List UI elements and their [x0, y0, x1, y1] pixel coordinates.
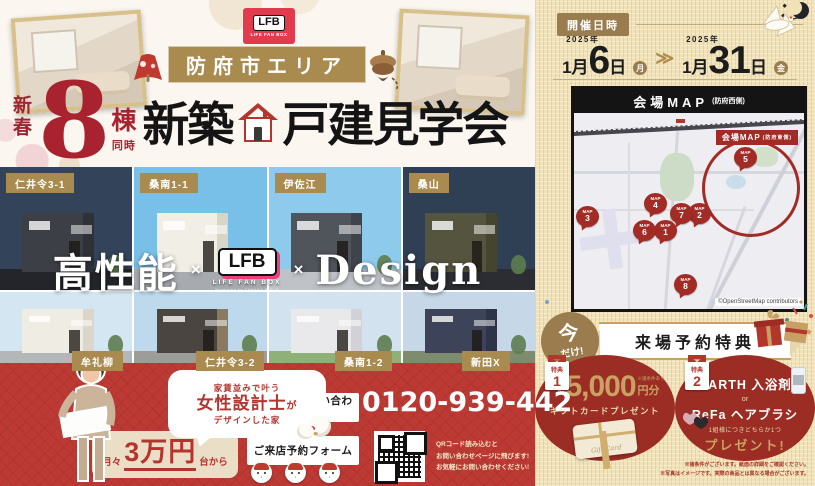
- house-label: 桑山: [409, 173, 449, 193]
- benefit2-note: 1組様につきどちらか1つ: [709, 425, 782, 434]
- start-date-main: 1月 6 日: [562, 45, 626, 78]
- fine-print-line1: ※諸条件がございます。紙面の詳細をご確認ください。: [609, 461, 809, 470]
- bubble-main-suffix: が: [287, 401, 298, 412]
- map-title: 会場MAP: [633, 92, 708, 111]
- map-header: 会場MAP (防府西側): [574, 89, 804, 113]
- qr-note-line2: お問い合わせページに飛びます!: [436, 451, 532, 463]
- station-marker: [676, 119, 685, 123]
- benefit2-or: or: [742, 394, 749, 403]
- lfb-logo-sub: LIFE FAN BOX: [250, 32, 287, 37]
- qr-note: QRコード読み込むと お問い合わせページに飛びます! お気軽にお問い合わせくださ…: [436, 439, 532, 474]
- daruma-icon: [251, 462, 272, 483]
- daruma-icon: [319, 462, 340, 483]
- benefit-badge-number: 2: [693, 374, 701, 388]
- fine-print: ※諸条件がございます。紙面の詳細をご確認ください。 ※写真はイメージです。実際の…: [609, 461, 809, 479]
- map-title-note: (防府西側): [712, 96, 745, 106]
- house-label: 伊佐江: [275, 173, 326, 193]
- end-day-unit: 日: [750, 53, 767, 78]
- end-date: 2025年 1月 31 日: [682, 34, 767, 78]
- bubble-main-text: 女性設計士: [197, 394, 287, 414]
- lfb-logo-caption: Produced by TANAKA BUILD: [215, 287, 279, 292]
- title-kodate: 戸建見学会: [282, 86, 507, 155]
- benefit2-badge: 特典 2: [685, 361, 709, 390]
- end-weekday-badge: 金: [774, 61, 788, 75]
- end-month: 1月: [682, 53, 708, 78]
- tagline-band: 高性能 × LFB LIFE FAN BOX Produced by TANAK…: [0, 241, 535, 299]
- lfb-center-logo: LFB LIFE FAN BOX Produced by TANAKA BUIL…: [213, 248, 282, 293]
- east-area-label-text: 会場MAP: [722, 132, 761, 143]
- area-banner: 防府市エリア: [168, 46, 366, 83]
- benefit-badge-label: 特典: [691, 365, 703, 374]
- house-illustration: [22, 309, 93, 353]
- house-label: 新田X: [462, 351, 510, 371]
- benefit2-description: プレゼント!: [704, 435, 785, 454]
- count-units: 棟 同時: [111, 101, 136, 153]
- benefit-badge-label: 特典: [551, 365, 563, 374]
- times-symbol: ×: [191, 260, 201, 280]
- map-pin-7: MAP7: [670, 203, 693, 224]
- bubble-line1: 家賃並みで叶う: [214, 382, 281, 394]
- park-area: [660, 153, 694, 201]
- house-illustration: [425, 309, 496, 353]
- price-suffix: 台から: [199, 454, 228, 468]
- count-number: 8: [38, 80, 110, 161]
- main-title: 新春 8 棟 同時 新築 戸建見学会: [8, 80, 507, 161]
- start-month: 1月: [562, 53, 588, 78]
- times-symbol: ×: [293, 260, 303, 280]
- snake-mascot-illustration: [297, 415, 331, 441]
- start-day: 6: [589, 45, 610, 77]
- flyer-poster: LFB LIFE FAN BOX 防府市エリア 新春 8 棟: [0, 0, 815, 486]
- house-label: 桑南1-2: [335, 351, 392, 371]
- amount-unit: 円分: [638, 382, 660, 398]
- schedule-badge: 開催日時: [557, 13, 629, 36]
- benefit2-item1: BARTH 入浴剤: [698, 374, 792, 393]
- start-weekday-badge: 月: [633, 61, 647, 75]
- house-label: 桑南1-1: [140, 173, 197, 193]
- fine-print-line2: ※写真はイメージです。実際の商品とは異なる場合がございます。: [609, 470, 809, 479]
- crane-icon: [751, 4, 799, 40]
- end-day: 31: [709, 45, 750, 77]
- house-label: 仁井令3-1: [6, 173, 74, 193]
- header-area: LFB LIFE FAN BOX 防府市エリア 新春 8 棟: [0, 0, 535, 167]
- map-pin-4: MAP4: [644, 193, 667, 214]
- contact-band: 家賃並みで叶う 女性設計士が デザインした家 月々 3万円 台から ご予約・お問…: [0, 363, 535, 486]
- phone-number: 0120-939-442: [362, 387, 572, 418]
- qr-note-line1: QRコード読み込むと: [436, 439, 532, 451]
- bubble-line3: デザインした家: [214, 414, 281, 426]
- map-body: 会場MAP (防府東側) MAP1 MAP2 MAP3 MAP4 MAP5 MA…: [574, 113, 804, 309]
- benefit1-badge: 特典 1: [545, 361, 569, 390]
- east-area-label-note: (防府東側): [763, 134, 792, 141]
- benefit2-card: 特典 2 BARTH 入浴剤 or ReFa ヘアブラシ 1組様につきどちらか1…: [675, 355, 815, 461]
- gift-boxes-illustration: [749, 300, 815, 354]
- east-area-label: 会場MAP (防府東側): [716, 130, 798, 145]
- tagline-performance: 高性能: [53, 241, 179, 299]
- map-pin-5: MAP5: [734, 147, 757, 168]
- start-day-unit: 日: [609, 53, 626, 78]
- event-dates: 2025年 1月 6 日 月 ≫ 2025年 1月 31 日 金: [535, 34, 815, 78]
- hairbrush-illustration: [683, 411, 711, 435]
- lfb-logo-text: LFB: [253, 15, 284, 31]
- amount-value: 5,000: [565, 372, 635, 402]
- daruma-icons: [251, 462, 340, 483]
- lfb-logo-sub: LIFE FAN BOX: [213, 279, 282, 286]
- house-illustration: [157, 309, 228, 353]
- end-date-main: 1月 31 日: [682, 45, 767, 78]
- season-label: 新春: [8, 95, 35, 139]
- date-range-arrow: ≫: [655, 48, 674, 69]
- designer-photo: [48, 353, 134, 486]
- house-icon: [236, 101, 280, 143]
- bubble-line2: 女性設計士が: [197, 394, 298, 414]
- section-divider: [553, 79, 797, 80]
- house-illustration: [291, 309, 362, 353]
- lfb-logo-text: LFB: [218, 248, 277, 277]
- map-pin-6: MAP6: [633, 220, 656, 241]
- event-info-panel: 開催日時 2025年 1月 6 日 月 ≫ 2025年: [535, 0, 815, 486]
- tagline-design: Design: [315, 247, 482, 294]
- map-pin-8: MAP8: [674, 274, 697, 295]
- house-label: 仁井令3-2: [196, 351, 264, 371]
- start-date: 2025年 1月 6 日: [562, 34, 626, 78]
- lfb-logo-badge: LFB LIFE FAN BOX: [243, 8, 295, 44]
- title-shinchiku: 新築: [142, 86, 232, 155]
- main-flyer-section: LFB LIFE FAN BOX 防府市エリア 新春 8 棟: [0, 0, 535, 486]
- daruma-icon: [285, 462, 306, 483]
- venue-map-card: 会場MAP (防府西側) 会場MAP (防府東側) MAP1 MAP2: [571, 86, 807, 312]
- map-pin-3: MAP3: [576, 206, 599, 227]
- benefit-badge-number: 1: [553, 374, 561, 388]
- qr-note-line3: お気軽にお問い合わせください!: [436, 462, 532, 474]
- qr-code: [374, 431, 425, 482]
- house-label: 牟礼柳: [72, 351, 123, 371]
- price-value: 3万円: [124, 438, 196, 471]
- count-unit2: 同時: [112, 137, 136, 153]
- bath-product-illustration: [791, 367, 806, 394]
- count-unit: 棟: [111, 101, 136, 137]
- gift-card-illustration: Gift Card: [572, 418, 638, 459]
- gift-card-label: Gift Card: [575, 441, 638, 456]
- fan-icon: [131, 52, 165, 82]
